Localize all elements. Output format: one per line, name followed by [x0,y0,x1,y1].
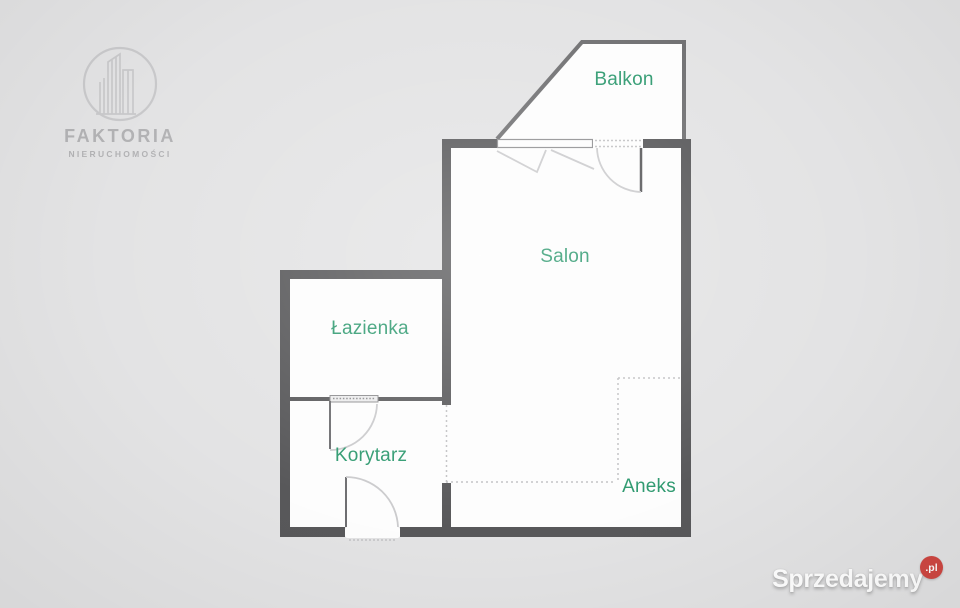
wall-bathroom-bottom-left [290,397,330,401]
room-label-korytarz: Korytarz [335,445,407,467]
balcony-window [498,140,593,148]
wall-right [681,139,691,537]
logo-title: FAKTORIA [40,126,200,147]
agency-logo: FAKTORIA NIERUCHOMOŚCI [40,44,200,159]
salon-floor [451,148,681,527]
entrance-gap [345,527,400,538]
portal-watermark-brand: Sprzedajemy [772,565,939,594]
buildings-in-circle-icon [70,44,170,124]
wall-bathroom-bottom-right [378,397,442,401]
logo-tower-center [108,54,120,114]
bathroom-door-opening [330,396,378,403]
logo-subtitle: NIERUCHOMOŚCI [40,149,200,159]
wall-salon-left-upper [442,139,451,405]
room-label-salon: Salon [540,246,590,268]
bath-corridor-floor [290,279,451,527]
room-label-aneks: Aneks [622,476,676,498]
room-label-lazienka: Łazienka [331,318,409,340]
balcony-door-opening [593,139,643,148]
entrance-threshold [345,527,400,540]
portal-watermark: Sprzedajemy .pl [772,565,939,594]
balcony-outline [497,42,684,139]
wall-left [280,270,290,537]
floorplan-image: Balkon Salon Łazienka Korytarz Aneks FAK… [0,0,960,608]
portal-watermark-tld: .pl [925,562,937,574]
wall-salon-left-lower [442,483,451,537]
portal-watermark-pl-badge: .pl [920,556,943,579]
wall-bathroom-top [280,270,451,279]
room-label-balkon: Balkon [594,69,653,91]
